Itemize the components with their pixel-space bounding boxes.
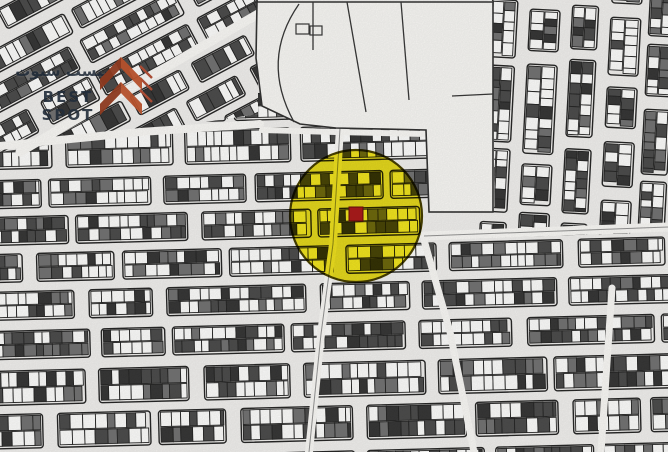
plot-marker-icon — [349, 207, 363, 221]
plot-location-map-image[interactable]: بيست سبوت BEST SPOT — [0, 0, 668, 452]
cadastral-map-canvas — [0, 0, 668, 452]
